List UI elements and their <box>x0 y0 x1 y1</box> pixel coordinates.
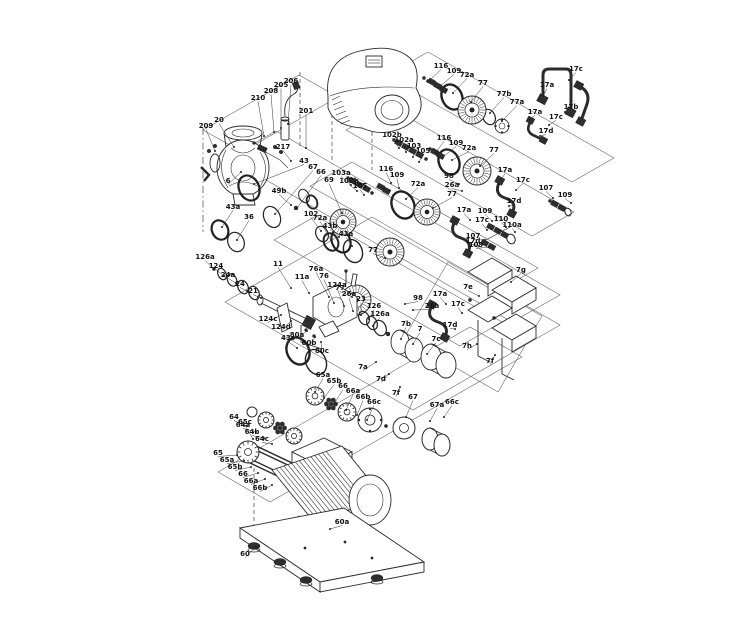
ribbed-disc <box>463 157 491 185</box>
leader-line <box>324 385 334 399</box>
part-label: 7f <box>486 357 495 365</box>
part-label: 17d <box>539 127 554 135</box>
part-label: 17a <box>498 166 513 174</box>
leader-dot <box>486 229 488 231</box>
leader-dot <box>329 528 331 530</box>
leader-dot <box>570 202 572 204</box>
leader-dot <box>290 160 292 162</box>
leader-dot <box>529 118 531 120</box>
leader-dot <box>356 190 358 192</box>
leader-dot <box>500 179 502 181</box>
leader-dot <box>264 478 266 480</box>
part-label: 209 <box>199 122 214 130</box>
part-label: 77b <box>497 90 512 98</box>
part-label: 124c <box>259 315 278 323</box>
part-label: 49b <box>272 187 287 195</box>
leader-dot <box>461 190 463 192</box>
part-label: 43a <box>339 230 354 238</box>
part-label: 201 <box>299 107 314 115</box>
coupling-guards <box>468 258 536 380</box>
part-label: 109 <box>469 241 484 249</box>
leader-dot <box>388 373 390 375</box>
part-label: 69 <box>324 176 334 184</box>
part-label: 21 <box>248 287 258 295</box>
leader-dot <box>314 391 316 393</box>
leader-dot <box>236 454 238 456</box>
leader-line <box>490 98 504 114</box>
leader-line <box>206 130 215 152</box>
part-label: 17d <box>507 197 522 205</box>
part-label: 23 <box>356 295 366 303</box>
part-label: 7e <box>463 283 473 291</box>
part-label: 72a <box>313 214 328 222</box>
leader-dot <box>484 239 486 241</box>
part-label: 107 <box>466 232 481 240</box>
leader-dot <box>405 198 407 200</box>
leader-line <box>468 291 479 297</box>
leader-dot <box>400 338 402 340</box>
leader-line <box>283 151 291 162</box>
leader-dot <box>489 112 491 114</box>
leader-dot <box>418 161 420 163</box>
part-label: 98 <box>444 172 454 180</box>
leader-dot <box>343 305 345 307</box>
part-label: 65c <box>238 418 252 426</box>
leader-dot <box>271 484 273 486</box>
leader-dot <box>488 246 490 248</box>
part-label: 72a <box>462 144 477 152</box>
leader-dot <box>240 171 242 173</box>
part-label: 77 <box>368 246 378 254</box>
leader-dot <box>426 353 428 355</box>
part-label: 109 <box>390 171 405 179</box>
part-label: 17b <box>564 103 579 111</box>
part-label: 17d <box>443 321 458 329</box>
part-label: 109 <box>478 207 493 215</box>
leader-dot <box>501 120 503 122</box>
leader-line <box>360 190 364 196</box>
part-label: 17c <box>549 113 563 121</box>
part-label: 7 <box>418 325 423 333</box>
part-label: 109 <box>558 191 573 199</box>
part-label: 210 <box>251 94 266 102</box>
leader-dot <box>435 151 437 153</box>
motor-control-unit <box>328 48 422 132</box>
base-assembly <box>240 508 424 592</box>
leader-dot <box>333 403 335 405</box>
leader-dot <box>451 159 453 161</box>
leader-dot <box>476 343 478 345</box>
leader-dot <box>494 354 496 356</box>
leader-dot <box>290 287 292 289</box>
part-label: 105 <box>353 182 368 190</box>
leader-line <box>406 401 413 418</box>
leader-line <box>334 390 343 405</box>
part-label: 60 <box>240 550 250 558</box>
leader-dot <box>452 92 454 94</box>
part-label: 7c <box>431 335 440 343</box>
leader-dot <box>273 131 275 133</box>
leader-dot <box>296 207 298 209</box>
ribbed-disc <box>376 238 404 266</box>
part-label: 80c <box>315 347 329 355</box>
leader-dot <box>255 546 257 548</box>
leader-dot <box>399 386 401 388</box>
leader-line <box>373 318 380 327</box>
leader-dot <box>366 419 368 421</box>
leader-line <box>429 70 441 82</box>
leader-dot <box>432 207 434 209</box>
exploded-parts-diagram: 20920210208205206201217643a364367666949b… <box>0 0 752 632</box>
leader-line <box>397 179 399 189</box>
leader-dot <box>314 336 316 338</box>
part-label: 107 <box>539 184 554 192</box>
part-label: 7a <box>358 363 368 371</box>
leader-dot <box>539 135 541 137</box>
part-label: 77 <box>489 146 499 154</box>
leader-line <box>271 95 274 133</box>
part-label: 11 <box>273 260 283 268</box>
leader-dot <box>280 314 282 316</box>
part-label: 6 <box>226 177 231 185</box>
leader-dot <box>250 466 252 468</box>
leader-dot <box>510 281 512 283</box>
part-label: 126a <box>370 310 390 318</box>
leader-dot <box>372 325 374 327</box>
part-label: 76 <box>319 272 329 280</box>
part-label: 98 <box>413 294 423 302</box>
leader-dot <box>320 341 322 343</box>
part-label: 60a <box>335 518 350 526</box>
part-label: 72a <box>411 180 426 188</box>
leader-line <box>278 268 291 289</box>
leader-line <box>222 211 233 228</box>
part-label: 17c <box>475 216 489 224</box>
leader-line <box>482 224 487 231</box>
leader-dot <box>333 302 335 304</box>
part-label: 126 <box>367 302 382 310</box>
leader-line <box>502 106 517 122</box>
part-label: 80b <box>302 339 317 347</box>
part-label: 80a <box>290 331 305 339</box>
leader-dot <box>252 438 254 440</box>
part-label: 67a <box>430 401 445 409</box>
part-label: 77 <box>478 79 488 87</box>
leader-dot <box>542 95 544 97</box>
part-label: 124a <box>327 281 347 289</box>
leader-dot <box>320 230 322 232</box>
part-label: 7h <box>462 342 472 350</box>
leader-dot <box>437 87 439 89</box>
leader-line <box>464 214 470 221</box>
leader-dot <box>515 189 517 191</box>
part-label: 24 <box>235 280 245 288</box>
leader-dot <box>428 80 430 82</box>
leader-dot <box>260 297 262 299</box>
leader-dot <box>356 414 358 416</box>
leader-dot <box>233 146 235 148</box>
ribbed-disc <box>414 199 440 225</box>
part-label: 126a <box>195 253 215 261</box>
leader-dot <box>508 205 510 207</box>
leader-dot <box>360 314 362 316</box>
part-label: 17c <box>569 65 583 73</box>
part-label: 206 <box>284 77 299 85</box>
part-label: 103a <box>331 169 351 177</box>
leader-dot <box>263 135 265 137</box>
part-label: 124 <box>209 262 224 270</box>
part-label: 20 <box>214 116 224 124</box>
leader-line <box>546 192 553 199</box>
leader-dot <box>274 213 276 215</box>
part-label: 7b <box>401 320 411 328</box>
leader-dot <box>221 226 223 228</box>
leader-dot <box>398 187 400 189</box>
leader-dot <box>552 197 554 199</box>
part-label: 17a <box>540 81 555 89</box>
part-label: 7g <box>516 266 526 274</box>
leader-dot <box>330 239 332 241</box>
leader-line <box>458 308 462 314</box>
leader-dot <box>308 292 310 294</box>
part-label: 77 <box>447 190 457 198</box>
leader-dot <box>491 220 493 222</box>
leader-dot <box>305 147 307 149</box>
leader-line <box>240 288 247 292</box>
leader-dot <box>404 303 406 305</box>
part-label: 36 <box>244 213 254 221</box>
part-label: 17c <box>516 176 530 184</box>
leader-dot <box>443 416 445 418</box>
part-label: 17a <box>457 206 472 214</box>
seal-stack <box>422 76 448 93</box>
leader-dot <box>368 318 370 320</box>
part-label: 17a <box>528 108 543 116</box>
leader-dot <box>390 182 392 184</box>
leader-dot <box>328 296 330 298</box>
leader-dot <box>363 194 365 196</box>
leader-dot <box>287 123 289 125</box>
part-label: 66b <box>253 484 268 492</box>
leader-line <box>430 409 437 422</box>
part-label: 26a <box>445 181 460 189</box>
leader-line <box>516 184 523 191</box>
part-label: 64c <box>255 435 269 443</box>
part-label: 124d <box>271 323 291 331</box>
leader-line <box>279 195 291 206</box>
part-label: 66c <box>445 398 459 406</box>
leader-dot <box>280 127 282 129</box>
leader-dot <box>469 219 471 221</box>
part-label: 217 <box>276 143 291 151</box>
leader-dot <box>514 231 516 233</box>
leader-line <box>288 85 291 125</box>
leader-dot <box>341 212 343 214</box>
leader-dot <box>290 204 292 206</box>
leader-dot <box>345 409 347 411</box>
part-label: 11a <box>295 273 310 281</box>
leader-dot <box>548 124 550 126</box>
leader-dot <box>323 397 325 399</box>
part-label: 7d <box>376 375 386 383</box>
part-label: 43a <box>226 203 241 211</box>
part-label: 24a <box>221 271 236 279</box>
leader-dot <box>461 312 463 314</box>
leader-line <box>565 199 571 204</box>
leader-dot <box>405 416 407 418</box>
leader-dot <box>412 343 414 345</box>
part-label: 17c <box>451 300 465 308</box>
leader-dot <box>412 156 414 158</box>
part-label: 26a <box>342 290 357 298</box>
leader-dot <box>214 150 216 152</box>
leader-dot <box>442 156 444 158</box>
leader-dot <box>290 320 292 322</box>
leader-dot <box>479 165 481 167</box>
leader-dot <box>384 257 386 259</box>
leader-dot <box>271 443 273 445</box>
diagram-canvas: 20920210208205206201217643a364367666949b… <box>0 0 752 632</box>
part-label: 26a <box>425 302 440 310</box>
leader-dot <box>375 361 377 363</box>
leader-dot <box>351 245 353 247</box>
ribbed-disc <box>458 96 486 124</box>
leader-line <box>440 298 446 305</box>
leader-line <box>444 406 452 418</box>
leader-dot <box>306 330 308 332</box>
part-label: 66 <box>316 168 326 176</box>
part-label: 17a <box>433 290 448 298</box>
leader-dot <box>352 310 354 312</box>
leader-dot <box>470 101 472 103</box>
part-label: 7f <box>392 389 401 397</box>
leader-dot <box>296 347 298 349</box>
part-label: 72a <box>460 71 475 79</box>
leader-dot <box>568 79 570 81</box>
part-label: 105 <box>416 147 431 155</box>
part-label: 66c <box>367 398 381 406</box>
leader-dot <box>405 151 407 153</box>
leader-dot <box>445 303 447 305</box>
leader-dot <box>398 147 400 149</box>
leader-line <box>302 281 309 294</box>
leader-dot <box>236 239 238 241</box>
leader-dot <box>564 111 566 113</box>
part-label: 110a <box>502 221 522 229</box>
leader-dot <box>253 183 255 185</box>
part-label: 43b <box>323 222 338 230</box>
leader-dot <box>478 295 480 297</box>
leader-dot <box>257 472 259 474</box>
pipe <box>579 86 588 121</box>
leader-dot <box>243 460 245 462</box>
part-label: 77a <box>510 98 525 106</box>
leader-dot <box>429 420 431 422</box>
part-label: 67 <box>408 393 418 401</box>
leader-dot <box>412 309 414 311</box>
